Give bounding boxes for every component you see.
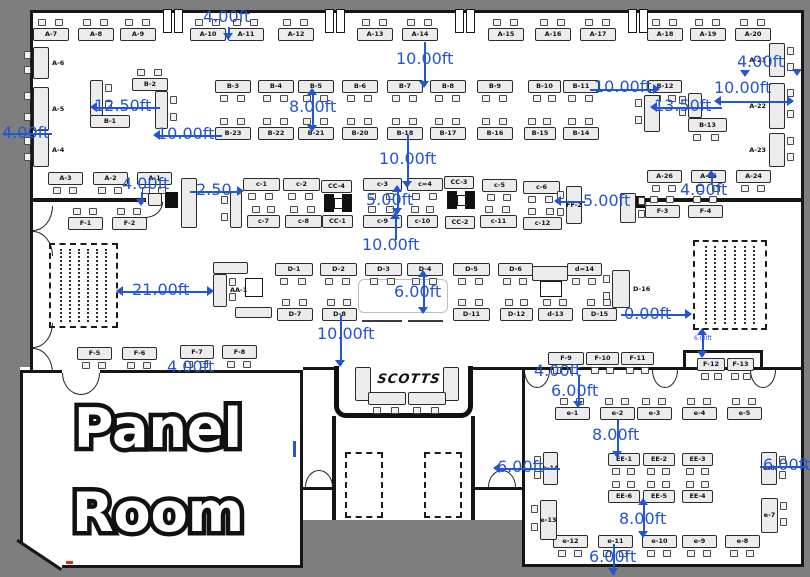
chair — [711, 134, 719, 141]
floor-plan: Scotts Panel Room A-7A-8A-9A-10A-11A-12A… — [0, 0, 810, 577]
table-label: A-15 — [498, 31, 515, 38]
measurement-label[interactable]: 10.00ft — [594, 79, 651, 96]
table-CC-1[interactable]: CC-1 — [322, 215, 353, 228]
table-A-9[interactable]: A-9 — [120, 28, 156, 41]
table[interactable] — [181, 178, 197, 228]
table-B-6[interactable]: B-6 — [342, 80, 378, 93]
chair — [409, 118, 417, 125]
chair — [280, 118, 288, 125]
audience-seating-area — [49, 243, 118, 328]
chair — [424, 19, 432, 26]
table[interactable] — [213, 262, 248, 274]
table-D-16[interactable]: D-16 — [612, 270, 630, 308]
chair — [731, 373, 739, 380]
table-CC-2[interactable]: CC-2 — [445, 216, 475, 229]
table-D-12[interactable]: D-12 — [500, 308, 533, 321]
table-e-1[interactable]: e-1 — [555, 407, 590, 420]
table-A-12[interactable]: A-12 — [278, 28, 314, 41]
chair — [458, 299, 466, 306]
measurement-arrow-icon — [307, 125, 317, 132]
table-D-5[interactable]: D-5 — [453, 263, 490, 276]
table-label: d-13 — [547, 311, 563, 318]
table-c-1[interactable]: c-1 — [243, 178, 280, 191]
removed-table-line — [362, 320, 402, 322]
measurement-label[interactable]: 8.00ft — [619, 511, 666, 528]
wall — [801, 10, 804, 567]
table-D-11[interactable]: D-11 — [453, 308, 490, 321]
chair — [743, 373, 751, 380]
table-B-13[interactable]: B-13 — [688, 118, 727, 132]
table-label: c-3 — [377, 181, 388, 188]
table-d=14[interactable]: d=14 — [567, 263, 602, 276]
wall — [300, 370, 303, 568]
table-label: e-9 — [694, 538, 706, 545]
chair — [325, 278, 333, 285]
table-label: F-4 — [700, 208, 711, 215]
chair — [263, 118, 271, 125]
chair — [621, 398, 629, 405]
measurement-label[interactable]: 5.00ft — [583, 193, 630, 210]
chair — [612, 468, 620, 475]
table-label: c-11 — [491, 218, 507, 225]
chair — [303, 118, 311, 125]
chair — [263, 95, 271, 102]
table-D-1[interactable]: D-1 — [275, 263, 313, 276]
door-leaf — [336, 9, 345, 33]
measurement-label[interactable]: 4.00ft — [122, 176, 169, 193]
chair — [668, 185, 676, 192]
chair — [227, 361, 235, 368]
table-label: B-23 — [225, 130, 242, 137]
table-c-11[interactable]: c-11 — [480, 215, 517, 228]
table-B-20[interactable]: B-20 — [342, 127, 378, 140]
table-B-14[interactable]: B-14 — [563, 127, 599, 140]
measurement-arrow-icon — [223, 33, 233, 40]
chair — [652, 185, 660, 192]
chair — [243, 361, 251, 368]
chair — [53, 187, 61, 194]
table-B-4[interactable]: B-4 — [258, 80, 294, 93]
measurement-label[interactable]: 13.50ft — [654, 98, 711, 115]
table-label: EE-3 — [689, 456, 705, 463]
table-label: c-9 — [377, 218, 388, 225]
measurement-label[interactable]: 6.00ft — [694, 336, 712, 342]
chair — [585, 118, 593, 125]
measurement-arrow-icon — [653, 84, 660, 94]
table[interactable] — [148, 193, 162, 206]
table-label: e-1 — [567, 410, 579, 417]
panel-room-line2: Room — [72, 481, 244, 544]
chair — [69, 187, 77, 194]
table-label: D-15 — [591, 311, 608, 318]
table-label: c-7 — [258, 218, 269, 225]
table-label: F-5 — [89, 350, 100, 357]
chair — [712, 19, 720, 26]
seating-row — [744, 246, 746, 324]
table-A-14[interactable]: A-14 — [402, 28, 438, 41]
measurement-label[interactable]: 2.50 — [196, 182, 232, 199]
chair — [531, 523, 538, 531]
measurement-label[interactable]: 10.00ft — [379, 151, 436, 168]
chair — [568, 95, 576, 102]
table-label: D-5 — [465, 266, 478, 273]
chair — [142, 19, 150, 26]
table-e-13[interactable]: e-13 — [540, 500, 557, 540]
measurement-label[interactable]: 4.00ft — [680, 182, 727, 199]
table-FF-2[interactable]: FF-2 — [566, 186, 582, 224]
table-label: A-11 — [238, 31, 255, 38]
table-label: EE-4 — [689, 493, 705, 500]
measurement-arrow-icon — [237, 186, 244, 196]
measurement-label[interactable]: 21.00ft — [132, 282, 189, 299]
measurement-arrow-icon — [787, 96, 794, 106]
table-F-10[interactable]: F-10 — [586, 352, 619, 365]
table-c-10[interactable]: c-10 — [407, 215, 438, 228]
table-label: A-5 — [52, 106, 64, 113]
table-label: B-15 — [532, 130, 549, 137]
table[interactable] — [235, 307, 272, 318]
chair — [237, 118, 245, 125]
chair — [686, 468, 694, 475]
table-A-6[interactable]: A-6 — [33, 47, 49, 79]
measurement-arrow-icon — [706, 170, 716, 177]
table-label: F-3 — [657, 208, 668, 215]
measurement-label[interactable]: 8.00ft — [289, 99, 336, 116]
chair — [392, 118, 400, 125]
chair — [409, 95, 417, 102]
table-label: B-11 — [573, 83, 590, 90]
table-e-8[interactable]: e-8 — [725, 535, 760, 548]
table-A-17[interactable]: A-17 — [580, 28, 616, 41]
table-label: A-9 — [132, 31, 144, 38]
table-B-7[interactable]: B-7 — [387, 80, 423, 93]
table-c-8[interactable]: c-8 — [285, 215, 322, 228]
table-D-15[interactable]: D-15 — [582, 308, 617, 321]
chair — [787, 153, 794, 161]
table-e-5[interactable]: e-5 — [727, 407, 762, 420]
table-label: B-22 — [268, 130, 285, 137]
measurement-label[interactable]: 10.00ft — [157, 126, 214, 143]
table-B-2[interactable]: B-2 — [132, 78, 168, 91]
table-c-12[interactable]: c-12 — [523, 217, 562, 230]
table-label: A-8 — [90, 31, 102, 38]
seating-row — [724, 246, 726, 324]
chair — [452, 95, 460, 102]
measurement-label[interactable]: 4.00ft — [167, 359, 214, 376]
chair — [701, 373, 709, 380]
table-CC-3[interactable]: CC-3 — [444, 176, 474, 189]
measurement-label[interactable]: 4.00ft — [203, 9, 250, 26]
chair — [519, 278, 527, 285]
chair — [505, 299, 513, 306]
chair — [568, 118, 576, 125]
table-e-2[interactable]: e-2 — [600, 407, 635, 420]
wall — [332, 416, 336, 520]
table-A-3[interactable]: A-3 — [48, 172, 83, 185]
table-B-10[interactable]: B-10 — [528, 80, 561, 93]
table-label: e-12 — [562, 538, 578, 545]
chair — [574, 550, 582, 557]
measurement-arrow-icon — [573, 401, 583, 408]
table-B-1[interactable]: B-1 — [90, 115, 130, 128]
table-label: F-7 — [191, 349, 202, 356]
table-A-15[interactable]: A-15 — [488, 28, 524, 41]
table-e-7[interactable]: e-7 — [761, 498, 778, 533]
table-label: B-18 — [397, 130, 414, 137]
chair — [687, 550, 695, 557]
chair — [606, 367, 614, 374]
table-D-2[interactable]: D-2 — [320, 263, 357, 276]
table-label: B-13 — [699, 122, 716, 129]
measurement-label[interactable]: 4.00ft — [2, 125, 49, 142]
chair — [603, 275, 610, 283]
table-label: B-17 — [440, 130, 457, 137]
table-A-16[interactable]: A-16 — [535, 28, 571, 41]
table-c-5[interactable]: c-5 — [482, 179, 517, 192]
table-A-26[interactable]: A-26 — [647, 170, 682, 183]
measurement-arrow-icon — [612, 451, 622, 458]
chair — [290, 206, 298, 213]
chair — [602, 19, 610, 26]
table-label: B-20 — [352, 130, 369, 137]
measurement-label[interactable]: 5.00ft — [366, 192, 413, 209]
chair — [364, 95, 372, 102]
table-EE-6[interactable]: EE-6 — [608, 490, 640, 503]
measurement-arrow-icon — [608, 568, 618, 575]
measurement-label[interactable]: 10.00ft — [714, 80, 771, 97]
measurement-label[interactable]: 12.50ft — [94, 98, 151, 115]
table-d-13[interactable]: d-13 — [538, 308, 573, 321]
table-label: A-16 — [545, 31, 562, 38]
chair — [305, 193, 313, 200]
table-B-18[interactable]: B-18 — [387, 127, 423, 140]
table-B-3[interactable]: B-3 — [215, 80, 251, 93]
table-F-11[interactable]: F-11 — [621, 352, 654, 365]
chair — [133, 208, 141, 215]
table[interactable] — [532, 266, 568, 281]
table-label: c-10 — [415, 218, 431, 225]
measurement-arrow-icon — [554, 196, 561, 206]
measurement-label[interactable]: 4.00ft — [534, 363, 581, 380]
table[interactable] — [408, 392, 446, 405]
chair — [248, 193, 256, 200]
chair — [493, 19, 501, 26]
table-A-19[interactable]: A-19 — [690, 28, 726, 41]
table-label: A-13 — [367, 31, 384, 38]
table-label: B-1 — [104, 118, 116, 125]
table-A-20[interactable]: A-20 — [735, 28, 771, 41]
table[interactable] — [230, 192, 242, 228]
chair — [533, 95, 541, 102]
table-label: D-3 — [377, 266, 390, 273]
table-e-4[interactable]: e-4 — [682, 407, 717, 420]
table-F-6[interactable]: F-6 — [122, 347, 157, 360]
measurement-label[interactable]: 6.00ft — [551, 383, 598, 400]
table-F-2[interactable]: F-2 — [112, 217, 147, 230]
chair — [605, 398, 613, 405]
chair — [347, 118, 355, 125]
chair — [780, 518, 787, 526]
chair — [307, 206, 315, 213]
chair — [662, 468, 670, 475]
door-leaf — [325, 9, 334, 33]
table-D-3[interactable]: D-3 — [365, 263, 402, 276]
table-A-18[interactable]: A-18 — [647, 28, 683, 41]
table-B-22[interactable]: B-22 — [258, 127, 294, 140]
chair — [327, 299, 335, 306]
table-label: A-7 — [45, 31, 57, 38]
table-A-7[interactable]: A-7 — [33, 28, 69, 41]
pillar-marker — [165, 192, 178, 208]
pillar-marker — [324, 194, 334, 212]
table-e-3[interactable]: e-3 — [637, 407, 672, 420]
measurement-arrow-icon — [418, 270, 428, 277]
chair — [252, 206, 260, 213]
chair — [612, 481, 620, 488]
table-A-23[interactable]: A-23 — [769, 133, 785, 167]
chair — [220, 95, 228, 102]
table-B-9[interactable]: B-9 — [477, 80, 513, 93]
wall — [62, 565, 303, 568]
table-c-2[interactable]: c-2 — [283, 178, 320, 191]
table-B-17[interactable]: B-17 — [430, 127, 466, 140]
table-label: CC-2 — [452, 219, 469, 226]
table-F-13[interactable]: F-13 — [727, 358, 754, 371]
measurement-label[interactable]: 6.00ft — [497, 459, 544, 476]
backstage-area — [424, 452, 462, 518]
chair — [137, 69, 145, 76]
chair — [543, 299, 551, 306]
table-label: CC-4 — [328, 183, 345, 190]
table-label: A-6 — [52, 60, 64, 67]
seating-row — [753, 246, 755, 324]
table-label: B-14 — [573, 130, 590, 137]
table-B-16[interactable]: B-16 — [477, 127, 513, 140]
chair — [143, 362, 151, 369]
measurement-arrow-icon — [638, 531, 648, 538]
chair — [503, 194, 511, 201]
table-e-9[interactable]: e-9 — [682, 535, 717, 548]
chair — [588, 278, 596, 285]
chair — [347, 95, 355, 102]
chair — [83, 19, 91, 26]
table-label: B-7 — [399, 83, 411, 90]
chair — [237, 95, 245, 102]
table-label: B-16 — [487, 130, 504, 137]
table-F-5[interactable]: F-5 — [77, 347, 112, 360]
table-B-15[interactable]: B-15 — [524, 127, 556, 140]
wall — [303, 487, 335, 490]
wall — [473, 487, 522, 490]
measurement-label[interactable]: 10.00ft — [396, 51, 453, 68]
chair — [55, 19, 63, 26]
chair — [114, 187, 122, 194]
table-e-12[interactable]: e-12 — [553, 535, 588, 548]
wall — [522, 564, 804, 567]
table-c-6[interactable]: c-6 — [523, 181, 560, 194]
chair — [38, 19, 46, 26]
chair — [548, 95, 556, 102]
table-D-6[interactable]: D-6 — [498, 263, 533, 276]
table-label: B-3 — [227, 83, 239, 90]
table-F-8[interactable]: F-8 — [222, 345, 257, 359]
table-B-23[interactable]: B-23 — [215, 127, 251, 140]
measurement-label[interactable]: 6.00ft — [589, 549, 636, 566]
table-label: EE-2 — [651, 456, 667, 463]
table-label: e-8 — [737, 538, 749, 545]
measurement-label[interactable]: 6.00ft — [394, 284, 441, 301]
table-F-4[interactable]: F-4 — [688, 205, 723, 218]
chair — [647, 550, 655, 557]
table-label: A-20 — [745, 31, 762, 38]
seating-row — [96, 249, 98, 322]
chair — [780, 502, 787, 510]
table-B-8[interactable]: B-8 — [430, 80, 466, 93]
table-D-7[interactable]: D-7 — [277, 308, 313, 321]
measurement-label[interactable]: 10.00ft — [362, 237, 419, 254]
chair — [98, 362, 106, 369]
table[interactable] — [368, 392, 406, 405]
chair — [557, 19, 565, 26]
chair — [587, 299, 595, 306]
measurement-label[interactable]: 4.00ft — [737, 54, 784, 71]
table-EE-2[interactable]: EE-2 — [643, 453, 675, 466]
table-A-11[interactable]: A-11 — [228, 28, 264, 41]
chair — [485, 206, 493, 213]
measurement-line — [716, 101, 792, 103]
table-label: A-24 — [745, 173, 762, 180]
measurement-arrow-icon — [685, 309, 692, 319]
chair — [499, 95, 507, 102]
measurement-arrow-icon — [402, 181, 412, 188]
chair — [100, 19, 108, 26]
chair — [647, 468, 655, 475]
table-A-8[interactable]: A-8 — [78, 28, 114, 41]
measurement-label[interactable]: 0.00ft — [624, 306, 671, 323]
panel-room-line1: Panel — [74, 397, 242, 460]
chair — [572, 278, 580, 285]
table-EE-3[interactable]: EE-3 — [682, 453, 713, 466]
chair — [299, 299, 307, 306]
wall — [30, 10, 804, 13]
chair — [320, 118, 328, 125]
table-EE-4[interactable]: EE-4 — [682, 490, 713, 503]
table-F-3[interactable]: F-3 — [645, 205, 680, 218]
measurement-label[interactable]: 6.00ft — [763, 457, 810, 474]
table-F-1[interactable]: F-1 — [68, 217, 103, 230]
chair — [638, 197, 645, 205]
chair — [267, 206, 275, 213]
chair — [475, 299, 483, 306]
table-CC-4[interactable]: CC-4 — [321, 180, 352, 193]
table-label: F-2 — [124, 220, 135, 227]
table-A-24[interactable]: A-24 — [736, 170, 771, 183]
measurement-label[interactable]: 10.00ft — [317, 326, 374, 343]
measurement-label[interactable]: 8.00ft — [592, 427, 639, 444]
table-label: c-8 — [298, 218, 309, 225]
table-c-7[interactable]: c-7 — [247, 215, 280, 228]
chair — [642, 398, 650, 405]
seating-row — [705, 246, 707, 324]
table-AA-1[interactable]: AA-1 — [213, 274, 227, 307]
door-leaf — [245, 278, 263, 297]
table-F-12[interactable]: F-12 — [697, 358, 725, 371]
table-A-13[interactable]: A-13 — [357, 28, 393, 41]
measurement-arrow-icon — [714, 96, 721, 106]
table-A-10[interactable]: A-10 — [190, 28, 226, 41]
chair — [364, 118, 372, 125]
measurement-arrow-icon — [418, 307, 428, 314]
